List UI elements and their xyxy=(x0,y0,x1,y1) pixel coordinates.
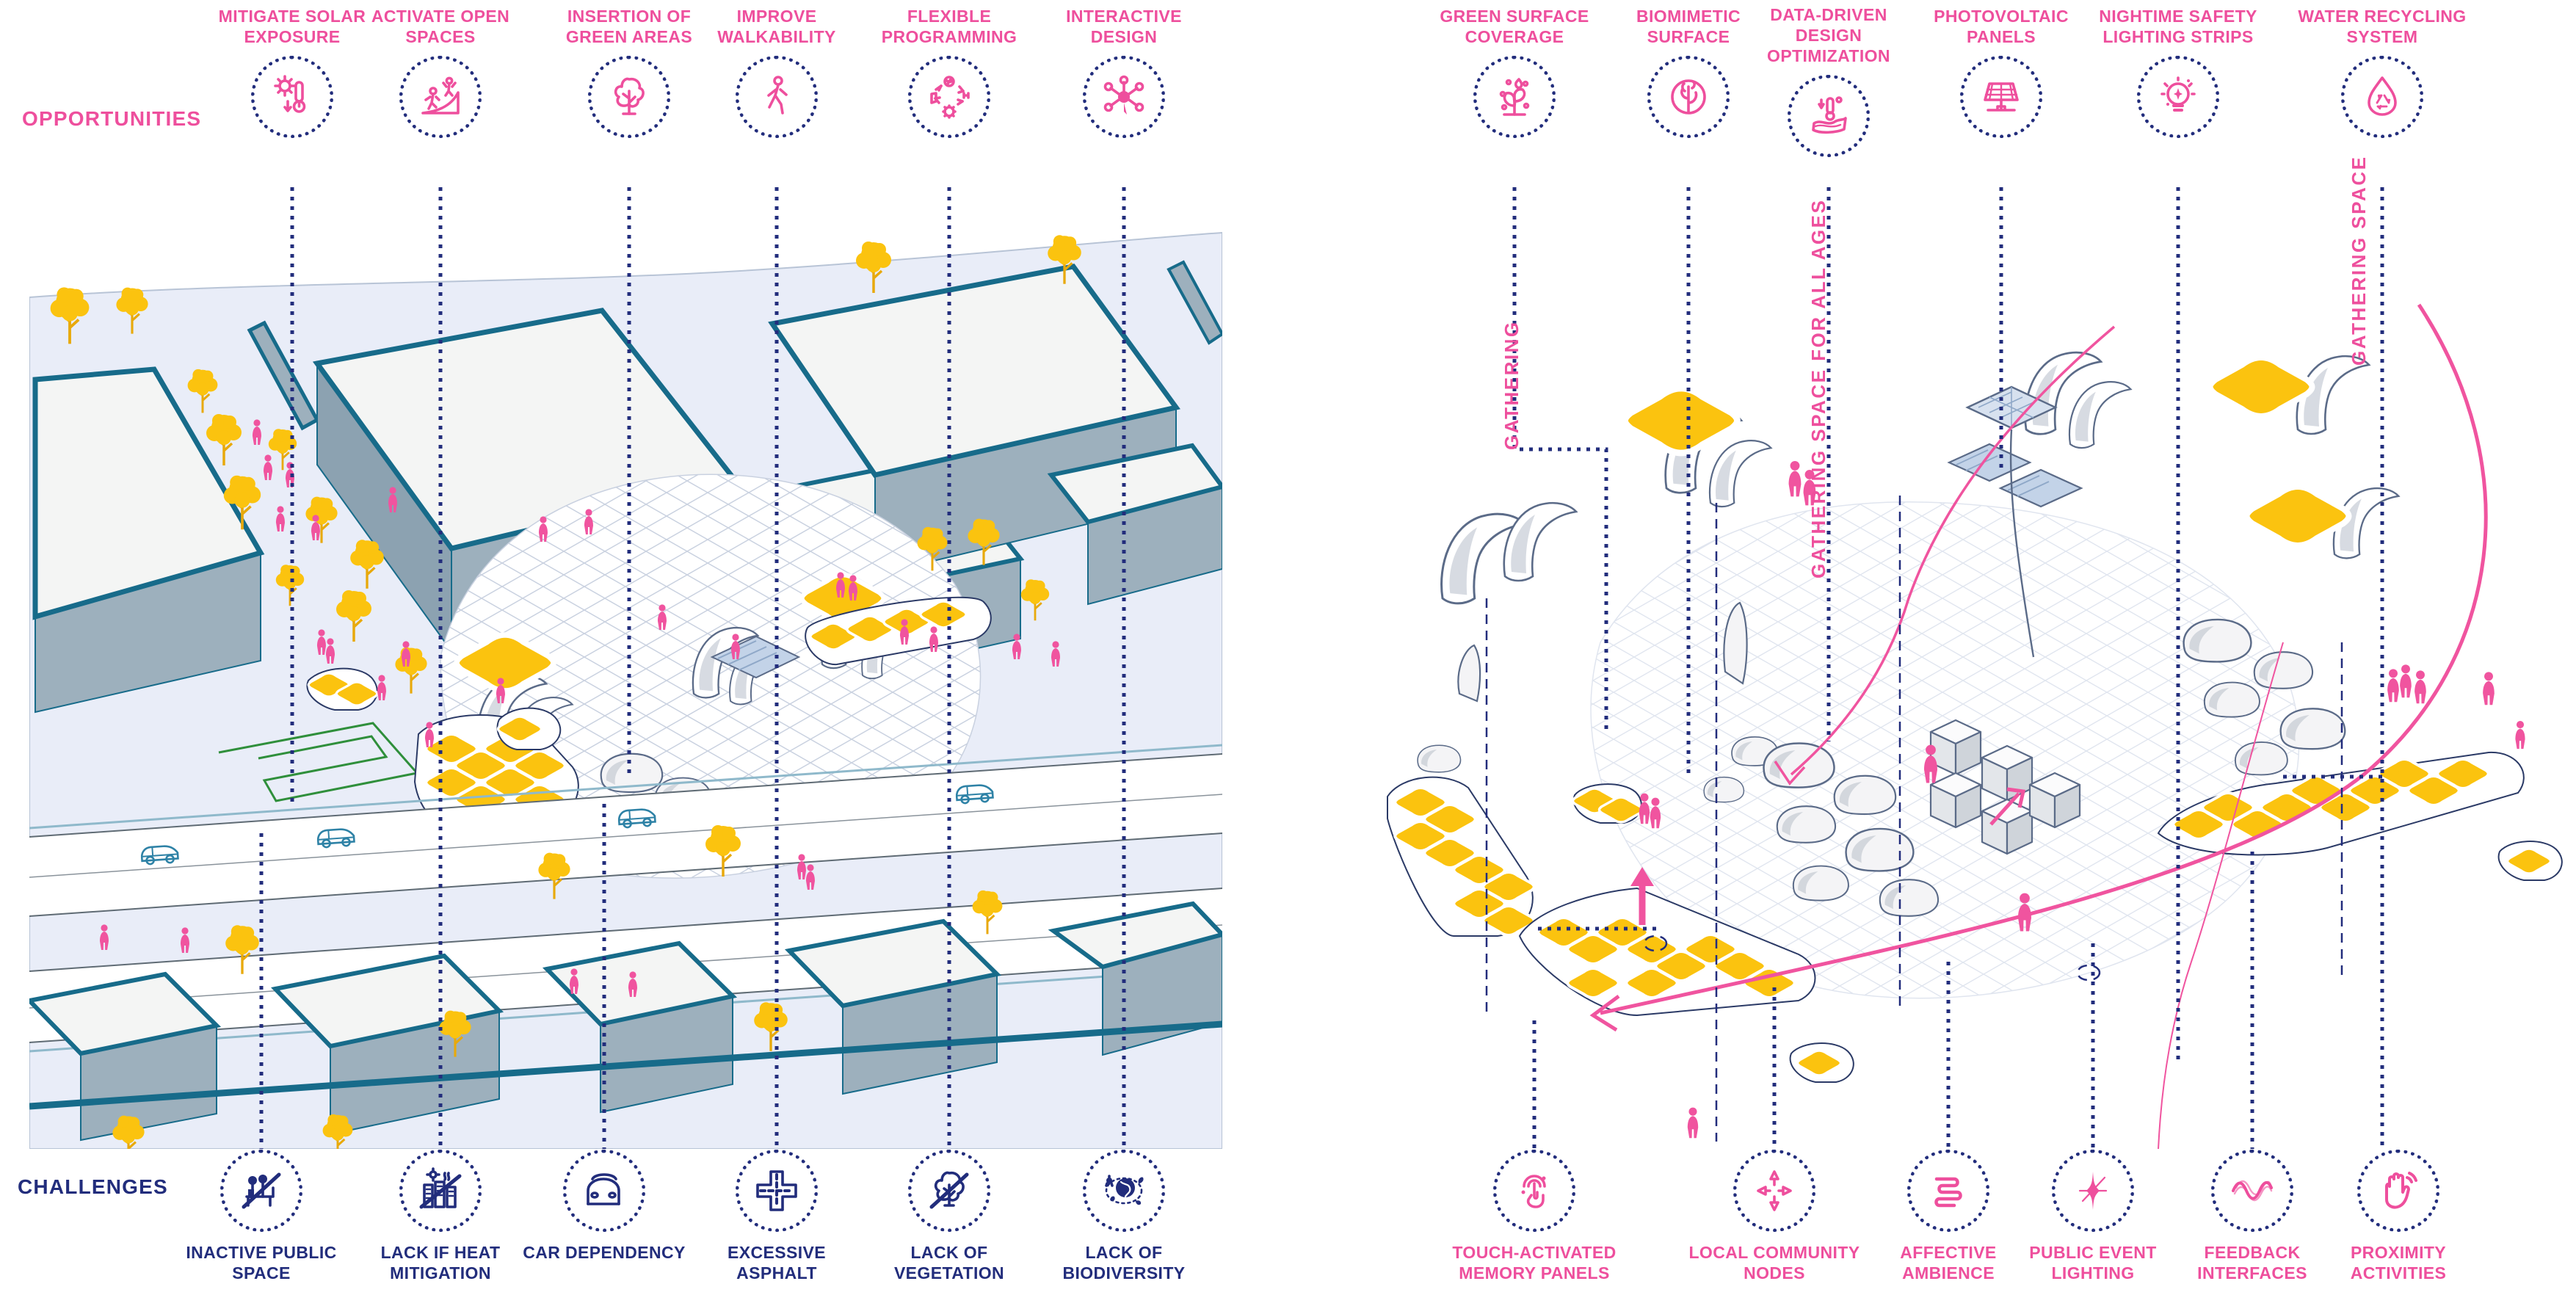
item-label: PROXIMITY ACTIVITIES xyxy=(2310,1242,2486,1285)
walking-person-icon xyxy=(753,73,800,120)
icon-circle xyxy=(908,56,990,138)
sun-thermometer-icon xyxy=(269,73,316,120)
ambience-squiggle-icon xyxy=(1925,1167,1972,1214)
icon-circle xyxy=(2341,56,2423,138)
icon-circle xyxy=(588,56,670,138)
event-sparkle-icon xyxy=(2069,1167,2116,1214)
opportunity-flexible-programming: FLEXIBLE PROGRAMMING xyxy=(861,4,1037,138)
proximity-hand-icon xyxy=(2375,1167,2422,1214)
icon-circle xyxy=(1733,1150,1815,1232)
icon-circle xyxy=(1960,56,2042,138)
icon-circle xyxy=(2357,1150,2439,1232)
plant-drops-icon xyxy=(1491,73,1538,120)
item-label: LOCAL COMMUNITY NODES xyxy=(1686,1242,1862,1285)
design-proposal-illustration xyxy=(1285,187,2576,1149)
inactive-park-icon xyxy=(238,1167,285,1214)
item-label: IMPROVE WALKABILITY xyxy=(689,4,865,47)
strategy-water-recycling: WATER RECYCLING SYSTEM xyxy=(2294,4,2470,138)
icon-circle xyxy=(1493,1150,1575,1232)
road-cross-icon xyxy=(753,1167,800,1214)
water-recycle-icon xyxy=(2359,73,2406,120)
challenge-heat-mitigation: LACK IF HEAT MITIGATION xyxy=(352,1150,529,1285)
item-label: FLEXIBLE PROGRAMMING xyxy=(861,4,1037,47)
surface-thermometer-icon xyxy=(1805,92,1852,139)
icon-circle xyxy=(2137,56,2219,138)
car-icon xyxy=(581,1167,628,1214)
icon-circle xyxy=(563,1150,645,1232)
annotation-gathering: GATHERING xyxy=(1501,307,1523,450)
challenge-lack-biodiversity: LACK OF BIODIVERSITY xyxy=(1036,1150,1212,1285)
skate-ramp-icon xyxy=(417,73,464,120)
icon-circle xyxy=(736,56,818,138)
opportunity-activate-spaces: ACTIVATE OPEN SPACES xyxy=(352,4,529,138)
feature-touch-panels: TOUCH-ACTIVATED MEMORY PANELS xyxy=(1446,1150,1622,1285)
icon-circle xyxy=(399,1150,482,1232)
feature-community-nodes: LOCAL COMMUNITY NODES xyxy=(1686,1150,1862,1285)
coral-icon xyxy=(1665,73,1712,120)
community-nodes-icon xyxy=(1751,1167,1798,1214)
strategy-data-driven: DATA-DRIVEN DESIGN OPTIMIZATION xyxy=(1741,4,1917,157)
interaction-network-icon xyxy=(1100,73,1147,120)
strategy-night-lighting: NIGHTIME SAFETY LIGHTING STRIPS xyxy=(2090,4,2266,138)
item-label: INACTIVE PUBLIC SPACE xyxy=(173,1242,349,1285)
opportunity-interactive-design: INTERACTIVE DESIGN xyxy=(1036,4,1212,138)
item-label: INTERACTIVE DESIGN xyxy=(1036,4,1212,47)
strategy-green-coverage: GREEN SURFACE COVERAGE xyxy=(1426,4,1603,138)
icon-circle xyxy=(736,1150,818,1232)
urban-heat-icon xyxy=(417,1167,464,1214)
item-label: PUBLIC EVENT LIGHTING xyxy=(2005,1242,2181,1285)
item-label: LACK IF HEAT MITIGATION xyxy=(352,1242,529,1285)
strategy-photovoltaic: PHOTOVOLTAIC PANELS xyxy=(1913,4,2089,138)
icon-circle xyxy=(1473,56,1556,138)
icon-circle xyxy=(1647,56,1730,138)
opportunity-walkability: IMPROVE WALKABILITY xyxy=(689,4,865,138)
canopy-top-right xyxy=(2210,356,2399,558)
item-label: EXCESSIVE ASPHALT xyxy=(689,1242,865,1285)
item-label: CAR DEPENDENCY xyxy=(523,1242,686,1285)
item-label: LACK OF VEGETATION xyxy=(861,1242,1037,1285)
diagram-canvas: OPPORTUNITIES CHALLENGES GATHERING GATHE… xyxy=(0,0,2576,1306)
item-label: PHOTOVOLTAIC PANELS xyxy=(1913,4,2089,47)
opportunities-heading: OPPORTUNITIES xyxy=(22,107,198,131)
challenge-excessive-asphalt: EXCESSIVE ASPHALT xyxy=(689,1150,865,1285)
challenges-heading: CHALLENGES xyxy=(18,1175,179,1199)
solar-panel-icon xyxy=(1978,73,2025,120)
biodiversity-globe-icon xyxy=(1100,1167,1147,1214)
icon-circle xyxy=(1788,75,1870,157)
icon-circle xyxy=(399,56,482,138)
feature-proximity-activities: PROXIMITY ACTIVITIES xyxy=(2310,1150,2486,1285)
item-label: WATER RECYCLING SYSTEM xyxy=(2294,4,2470,47)
item-label: DATA-DRIVEN DESIGN OPTIMIZATION xyxy=(1741,4,1917,66)
site-analysis-illustration xyxy=(29,187,1222,1149)
item-label: ACTIVATE OPEN SPACES xyxy=(352,4,529,47)
item-label: TOUCH-ACTIVATED MEMORY PANELS xyxy=(1446,1242,1622,1285)
annotation-gathering-space: GATHERING SPACE xyxy=(2348,188,2370,366)
item-label: LACK OF BIODIVERSITY xyxy=(1036,1242,1212,1285)
icon-circle xyxy=(2211,1150,2293,1232)
challenge-inactive-space: INACTIVE PUBLIC SPACE xyxy=(173,1150,349,1285)
icon-circle xyxy=(908,1150,990,1232)
icon-circle xyxy=(220,1150,302,1232)
activity-cycle-icon xyxy=(926,73,973,120)
icon-circle xyxy=(251,56,333,138)
challenge-car-dependency: CAR DEPENDENCY xyxy=(516,1150,692,1285)
canopy-gathering xyxy=(1625,297,1771,507)
annotation-gathering-space-all-ages: GATHERING SPACE FOR ALL AGES xyxy=(1807,211,1830,578)
touch-panel-icon xyxy=(1511,1167,1558,1214)
light-bulb-icon xyxy=(2155,73,2202,120)
icon-circle xyxy=(2052,1150,2134,1232)
no-tree-icon xyxy=(926,1167,973,1214)
challenge-lack-vegetation: LACK OF VEGETATION xyxy=(861,1150,1037,1285)
item-label: NIGHTIME SAFETY LIGHTING STRIPS xyxy=(2090,4,2266,47)
feature-event-lighting: PUBLIC EVENT LIGHTING xyxy=(2005,1150,2181,1285)
icon-circle xyxy=(1907,1150,1989,1232)
icon-circle xyxy=(1083,1150,1165,1232)
item-label: GREEN SURFACE COVERAGE xyxy=(1426,4,1603,47)
feedback-wave-icon xyxy=(2229,1167,2276,1214)
tree-icon xyxy=(606,73,653,120)
icon-circle xyxy=(1083,56,1165,138)
